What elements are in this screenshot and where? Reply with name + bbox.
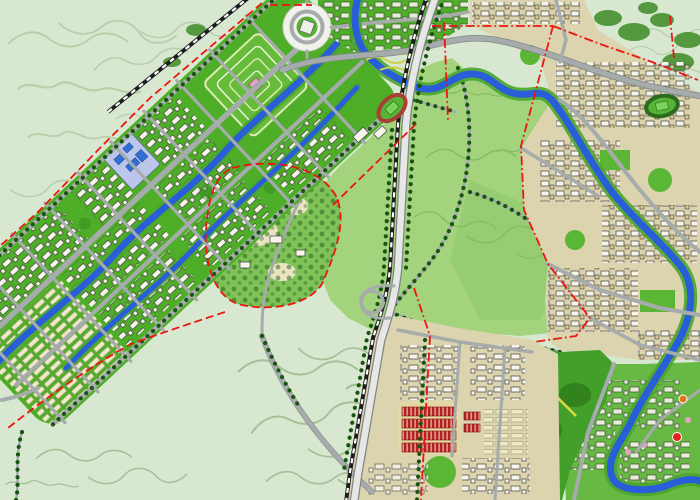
flowering-tree [685,417,691,423]
campus-building [240,262,250,268]
se-green [424,456,456,488]
city-blocks [472,2,580,24]
se-row-blocks [484,408,528,456]
orange-dot-marker [679,395,687,403]
campus-building [270,236,282,243]
campus-building [296,250,305,256]
red-dot-marker [673,433,682,442]
map-canvas [0,0,700,500]
flowering-tree [625,449,631,455]
se-blocks [470,345,525,400]
city-blocks [548,268,638,332]
city-green [565,230,585,250]
masterplan-map [0,0,700,500]
city-green [648,168,672,192]
